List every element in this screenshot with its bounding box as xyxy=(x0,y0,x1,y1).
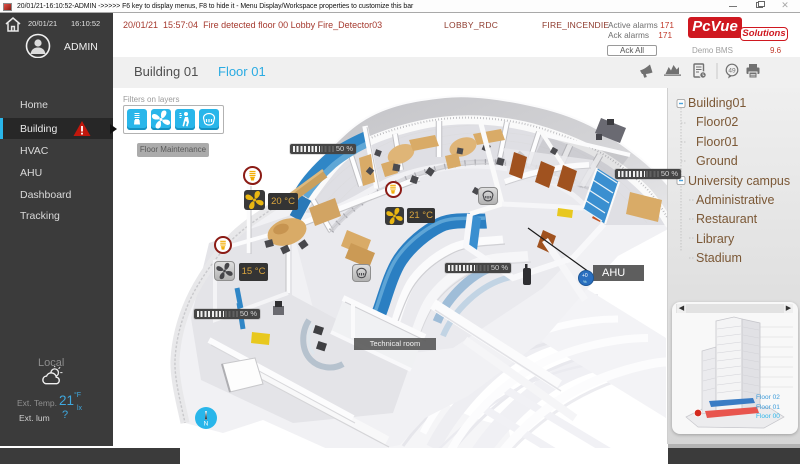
svg-text:Floor 00: Floor 00 xyxy=(756,413,780,420)
svg-text:N: N xyxy=(204,421,209,428)
svg-text:Floor 01: Floor 01 xyxy=(756,404,780,411)
svg-text:49: 49 xyxy=(728,68,736,75)
svg-text:Floor 02: Floor 02 xyxy=(756,394,780,401)
